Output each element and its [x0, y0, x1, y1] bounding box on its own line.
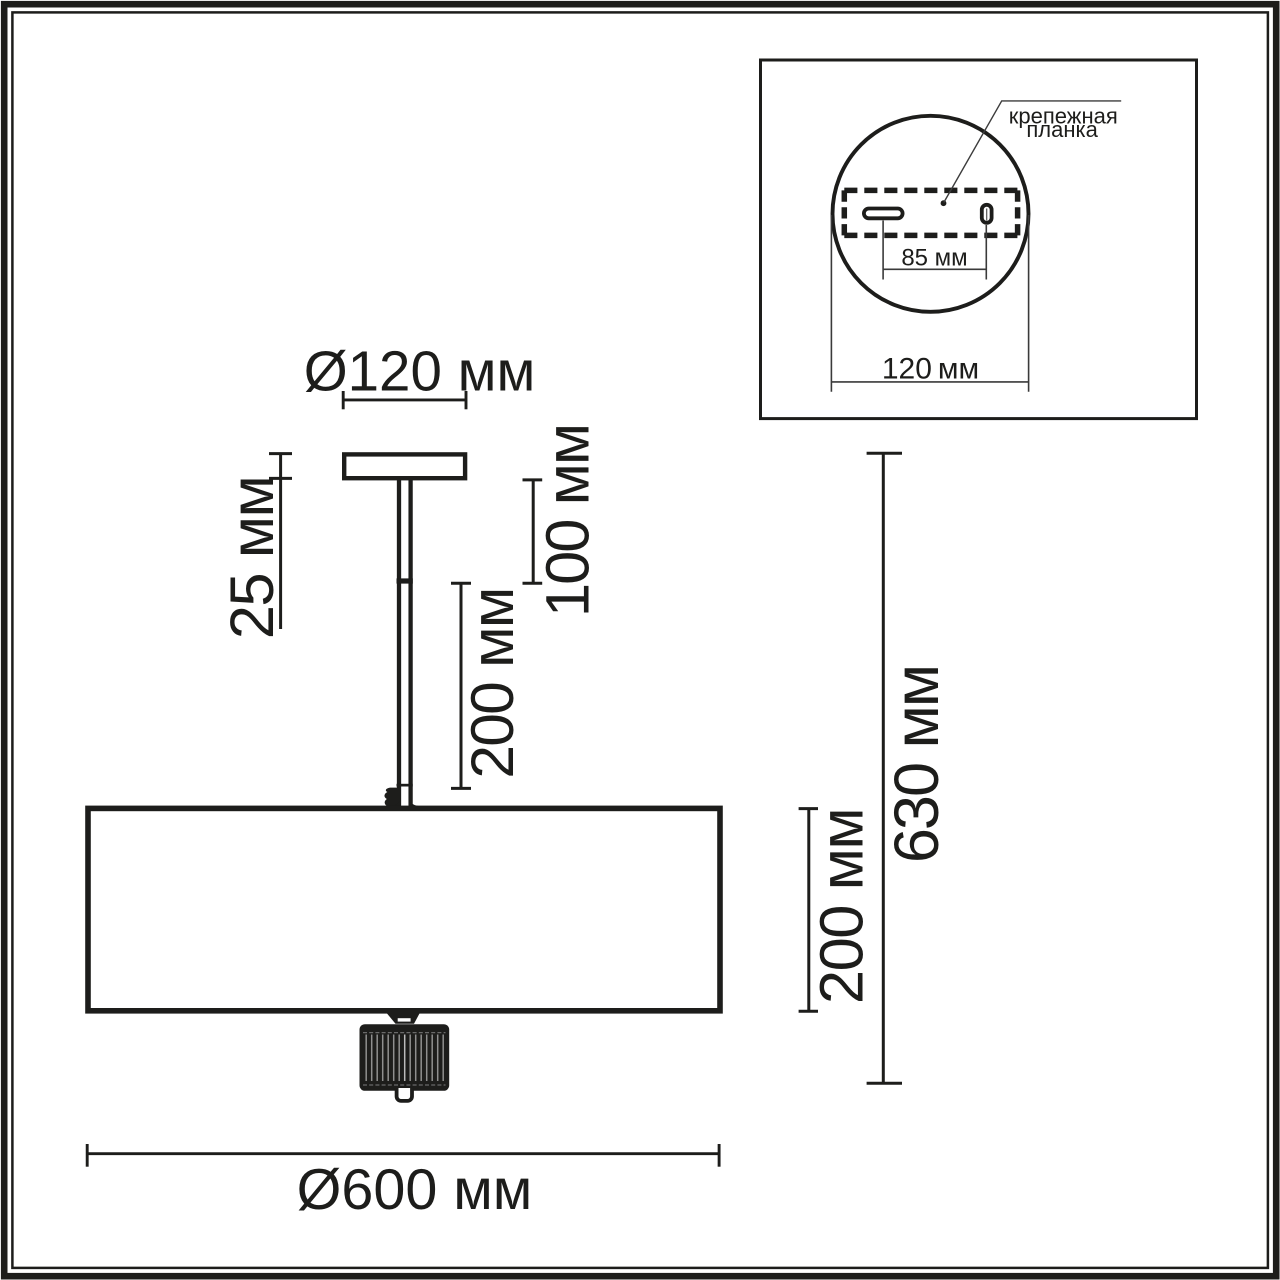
svg-text:Ø120 мм: Ø120 мм [304, 340, 536, 403]
svg-text:120 мм: 120 мм [882, 353, 979, 386]
svg-text:25 мм: 25 мм [218, 477, 287, 640]
svg-text:200 мм: 200 мм [808, 809, 877, 1004]
svg-text:200 мм: 200 мм [458, 588, 526, 778]
svg-text:85 мм: 85 мм [901, 245, 967, 272]
svg-text:630 мм: 630 мм [882, 666, 952, 863]
svg-text:Ø600 мм: Ø600 мм [297, 1158, 533, 1222]
svg-text:планка: планка [1026, 117, 1098, 142]
svg-text:100 мм: 100 мм [534, 425, 603, 617]
